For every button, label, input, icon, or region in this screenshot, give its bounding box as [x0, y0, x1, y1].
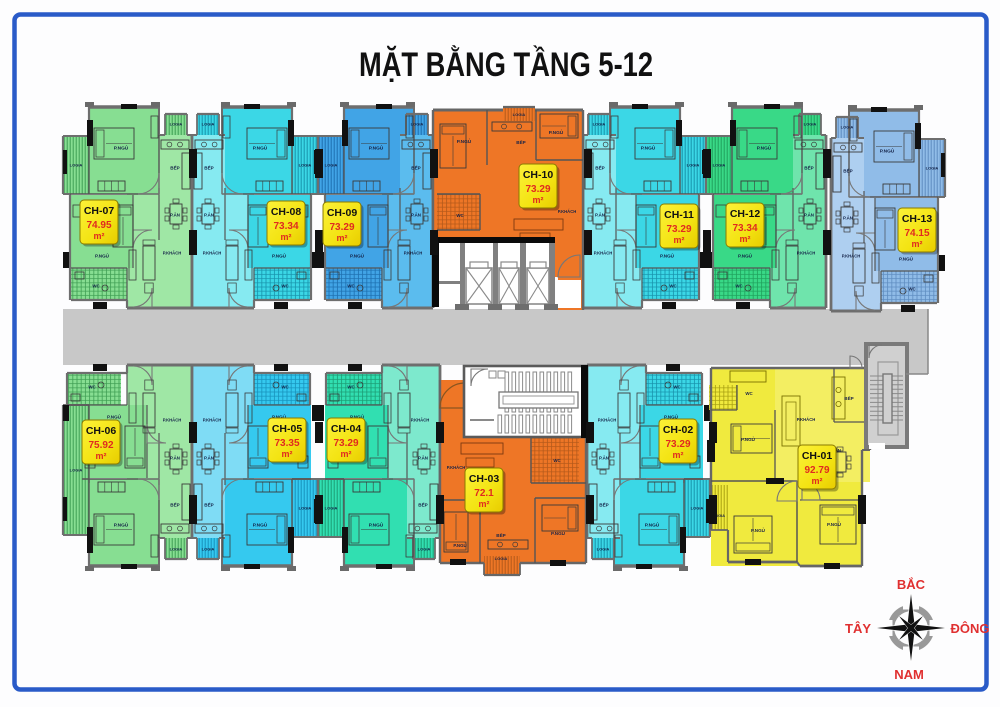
svg-text:P.NGỦ: P.NGỦ: [95, 253, 110, 259]
svg-text:LOGIA: LOGIA: [691, 505, 704, 510]
svg-text:NAM: NAM: [894, 667, 924, 682]
svg-text:CH-06: CH-06: [86, 425, 117, 437]
svg-text:WC: WC: [735, 284, 743, 289]
svg-text:P.ĂN: P.ĂN: [843, 216, 853, 221]
svg-text:WC: WC: [908, 287, 916, 292]
svg-text:74.95: 74.95: [86, 220, 111, 231]
svg-text:P.NGỦ: P.NGỦ: [272, 253, 287, 259]
svg-text:P.ĂN: P.ĂN: [170, 456, 180, 461]
svg-text:P.NGỦ: P.NGỦ: [741, 436, 756, 442]
svg-text:WC: WC: [281, 284, 289, 289]
svg-text:LOGIA: LOGIA: [418, 546, 431, 551]
svg-text:WC: WC: [347, 284, 355, 289]
svg-text:P.ĂN: P.ĂN: [595, 213, 605, 218]
svg-text:WC: WC: [88, 385, 96, 390]
svg-text:m²: m²: [281, 232, 292, 242]
svg-text:TÂY: TÂY: [845, 621, 871, 636]
svg-text:CH-09: CH-09: [327, 207, 358, 219]
svg-text:m²: m²: [673, 450, 684, 460]
svg-text:P.NGỦ: P.NGỦ: [114, 522, 129, 529]
svg-text:P.ĂN: P.ĂN: [170, 213, 180, 218]
svg-text:m²: m²: [674, 235, 685, 245]
svg-text:P.KHÁCH: P.KHÁCH: [404, 251, 423, 256]
svg-text:P.NGỦ: P.NGỦ: [253, 522, 268, 529]
svg-text:LOGIA: LOGIA: [299, 505, 312, 510]
svg-text:WC: WC: [673, 385, 681, 390]
svg-text:92.79: 92.79: [804, 465, 829, 476]
svg-text:BẾP: BẾP: [844, 395, 853, 401]
svg-text:BẮC: BẮC: [897, 577, 926, 592]
svg-text:P.NGỦ: P.NGỦ: [114, 145, 129, 152]
svg-text:P.NGỦ: P.NGỦ: [350, 253, 365, 259]
svg-text:BẾP: BẾP: [595, 165, 604, 171]
svg-text:BẾP: BẾP: [170, 165, 179, 171]
svg-text:BẾP: BẾP: [204, 165, 213, 171]
svg-text:WC: WC: [745, 391, 753, 396]
svg-text:BẾP: BẾP: [516, 139, 525, 145]
svg-text:CH-01: CH-01: [802, 450, 833, 462]
svg-text:BẾP: BẾP: [804, 165, 813, 171]
svg-text:m²: m²: [533, 195, 544, 205]
svg-text:P.KHÁCH: P.KHÁCH: [163, 418, 182, 423]
svg-text:P.KHÁCH: P.KHÁCH: [203, 251, 222, 256]
svg-text:74.15: 74.15: [904, 228, 929, 239]
svg-text:CH-05: CH-05: [272, 423, 303, 435]
svg-text:P.ĂN: P.ĂN: [599, 456, 609, 461]
svg-text:P.NGỦ: P.NGỦ: [738, 253, 753, 259]
svg-text:P.KHÁCH: P.KHÁCH: [797, 251, 816, 256]
svg-text:P.KHÁCH: P.KHÁCH: [203, 418, 222, 423]
svg-text:72.1: 72.1: [474, 488, 494, 499]
svg-text:LOGIA: LOGIA: [170, 121, 183, 126]
svg-text:P.KHÁCH: P.KHÁCH: [598, 418, 617, 423]
svg-text:BẾP: BẾP: [204, 502, 213, 508]
svg-text:P.NGỦ: P.NGỦ: [757, 145, 772, 152]
svg-text:m²: m²: [812, 476, 823, 486]
svg-text:m²: m²: [740, 234, 751, 244]
svg-text:m²: m²: [341, 449, 352, 459]
svg-text:73.29: 73.29: [665, 439, 690, 450]
svg-text:m²: m²: [94, 231, 105, 241]
svg-text:P.ĂN: P.ĂN: [411, 213, 421, 218]
svg-text:P.KHÁCH: P.KHÁCH: [797, 417, 816, 422]
svg-text:CH-08: CH-08: [271, 206, 302, 218]
svg-text:LOGIA: LOGIA: [593, 121, 606, 126]
svg-text:P.KHÁCH: P.KHÁCH: [447, 465, 466, 470]
svg-text:P.NGỦ: P.NGỦ: [369, 522, 384, 529]
svg-text:P.KHÁCH: P.KHÁCH: [842, 254, 861, 259]
svg-text:WC: WC: [553, 458, 561, 463]
svg-text:WC: WC: [456, 213, 464, 218]
svg-text:P.NGỦ: P.NGỦ: [641, 145, 656, 152]
svg-text:WC: WC: [92, 284, 100, 289]
svg-text:LOGIA: LOGIA: [411, 121, 424, 126]
svg-text:WC: WC: [347, 385, 355, 390]
svg-text:P.NGỦ: P.NGỦ: [453, 543, 466, 548]
svg-text:LOGIA: LOGIA: [70, 162, 83, 167]
svg-text:P.NGỦ: P.NGỦ: [549, 129, 564, 136]
svg-text:73.29: 73.29: [666, 224, 691, 235]
svg-text:LOGIA: LOGIA: [495, 556, 508, 561]
svg-text:CH-02: CH-02: [663, 424, 694, 436]
svg-text:LOGIA: LOGIA: [513, 112, 526, 117]
svg-text:LOGIA: LOGIA: [713, 162, 726, 167]
svg-text:CH-03: CH-03: [469, 473, 500, 485]
svg-text:CH-10: CH-10: [523, 169, 554, 181]
svg-text:LOGIA: LOGIA: [804, 121, 817, 126]
svg-text:P.ĂN: P.ĂN: [204, 456, 214, 461]
svg-text:BẾP: BẾP: [496, 532, 505, 538]
svg-text:P.NGỦ: P.NGỦ: [827, 521, 842, 527]
svg-text:P.NGỦ: P.NGỦ: [457, 138, 472, 145]
svg-text:P.KHÁCH: P.KHÁCH: [411, 418, 430, 423]
svg-text:LOGIA: LOGIA: [70, 467, 83, 472]
svg-text:LOGIA: LOGIA: [597, 546, 610, 551]
svg-text:LOGIA: LOGIA: [325, 162, 338, 167]
svg-text:m²: m²: [912, 239, 923, 249]
svg-text:P.NGỦ: P.NGỦ: [107, 414, 122, 420]
svg-text:LOGIA: LOGIA: [687, 162, 700, 167]
svg-text:P.KHÁCH: P.KHÁCH: [558, 209, 577, 214]
svg-text:P.NGỦ: P.NGỦ: [369, 145, 384, 152]
svg-text:P.ĂN: P.ĂN: [804, 213, 814, 218]
svg-text:MẶT BẰNG TẦNG 5-12: MẶT BẰNG TẦNG 5-12: [359, 46, 653, 84]
svg-text:m²: m²: [282, 449, 293, 459]
svg-text:P.KHÁCH: P.KHÁCH: [163, 251, 182, 256]
svg-text:73.29: 73.29: [329, 222, 354, 233]
svg-text:75.92: 75.92: [88, 440, 113, 451]
svg-text:m²: m²: [479, 499, 490, 509]
svg-text:LOGIA: LOGIA: [202, 546, 215, 551]
svg-text:P.NGỦ: P.NGỦ: [880, 148, 895, 155]
svg-text:LOGIA: LOGIA: [926, 165, 939, 170]
svg-text:CH-13: CH-13: [902, 213, 933, 225]
svg-text:LOGIA: LOGIA: [202, 121, 215, 126]
svg-text:73.34: 73.34: [273, 221, 298, 232]
svg-text:P.ĂN: P.ĂN: [204, 213, 214, 218]
svg-text:73.29: 73.29: [333, 438, 358, 449]
svg-text:CH-11: CH-11: [664, 209, 694, 221]
svg-text:73.35: 73.35: [274, 438, 299, 449]
svg-text:ĐÔNG: ĐÔNG: [951, 621, 990, 636]
svg-text:BẾP: BẾP: [843, 168, 852, 174]
svg-text:73.34: 73.34: [732, 223, 757, 234]
svg-text:CH-12: CH-12: [730, 208, 761, 220]
svg-text:LOGIA: LOGIA: [325, 505, 338, 510]
svg-text:CH-04: CH-04: [331, 423, 362, 435]
svg-text:m²: m²: [337, 233, 348, 243]
svg-text:BẾP: BẾP: [418, 502, 427, 508]
svg-text:BẾP: BẾP: [411, 165, 420, 171]
svg-text:P.NGỦ: P.NGỦ: [645, 522, 660, 529]
svg-text:CH-07: CH-07: [84, 205, 115, 217]
svg-text:P.NGỦ: P.NGỦ: [551, 530, 566, 536]
svg-text:P.NGỦ: P.NGỦ: [660, 253, 675, 259]
svg-text:WC: WC: [669, 284, 677, 289]
svg-text:P.NGỦ: P.NGỦ: [899, 256, 914, 262]
svg-text:BẾP: BẾP: [599, 502, 608, 508]
svg-text:m²: m²: [96, 451, 107, 461]
svg-text:BẾP: BẾP: [170, 502, 179, 508]
svg-text:LOGIA: LOGIA: [299, 162, 312, 167]
svg-text:LOGIA: LOGIA: [841, 124, 854, 129]
svg-text:WC: WC: [281, 385, 289, 390]
svg-text:P.NGỦ: P.NGỦ: [253, 145, 268, 152]
svg-text:LOGIA: LOGIA: [170, 546, 183, 551]
svg-text:73.29: 73.29: [525, 184, 550, 195]
svg-text:P.NGỦ: P.NGỦ: [751, 527, 766, 533]
svg-text:P.ĂN: P.ĂN: [418, 456, 428, 461]
svg-text:P.KHÁCH: P.KHÁCH: [594, 251, 613, 256]
